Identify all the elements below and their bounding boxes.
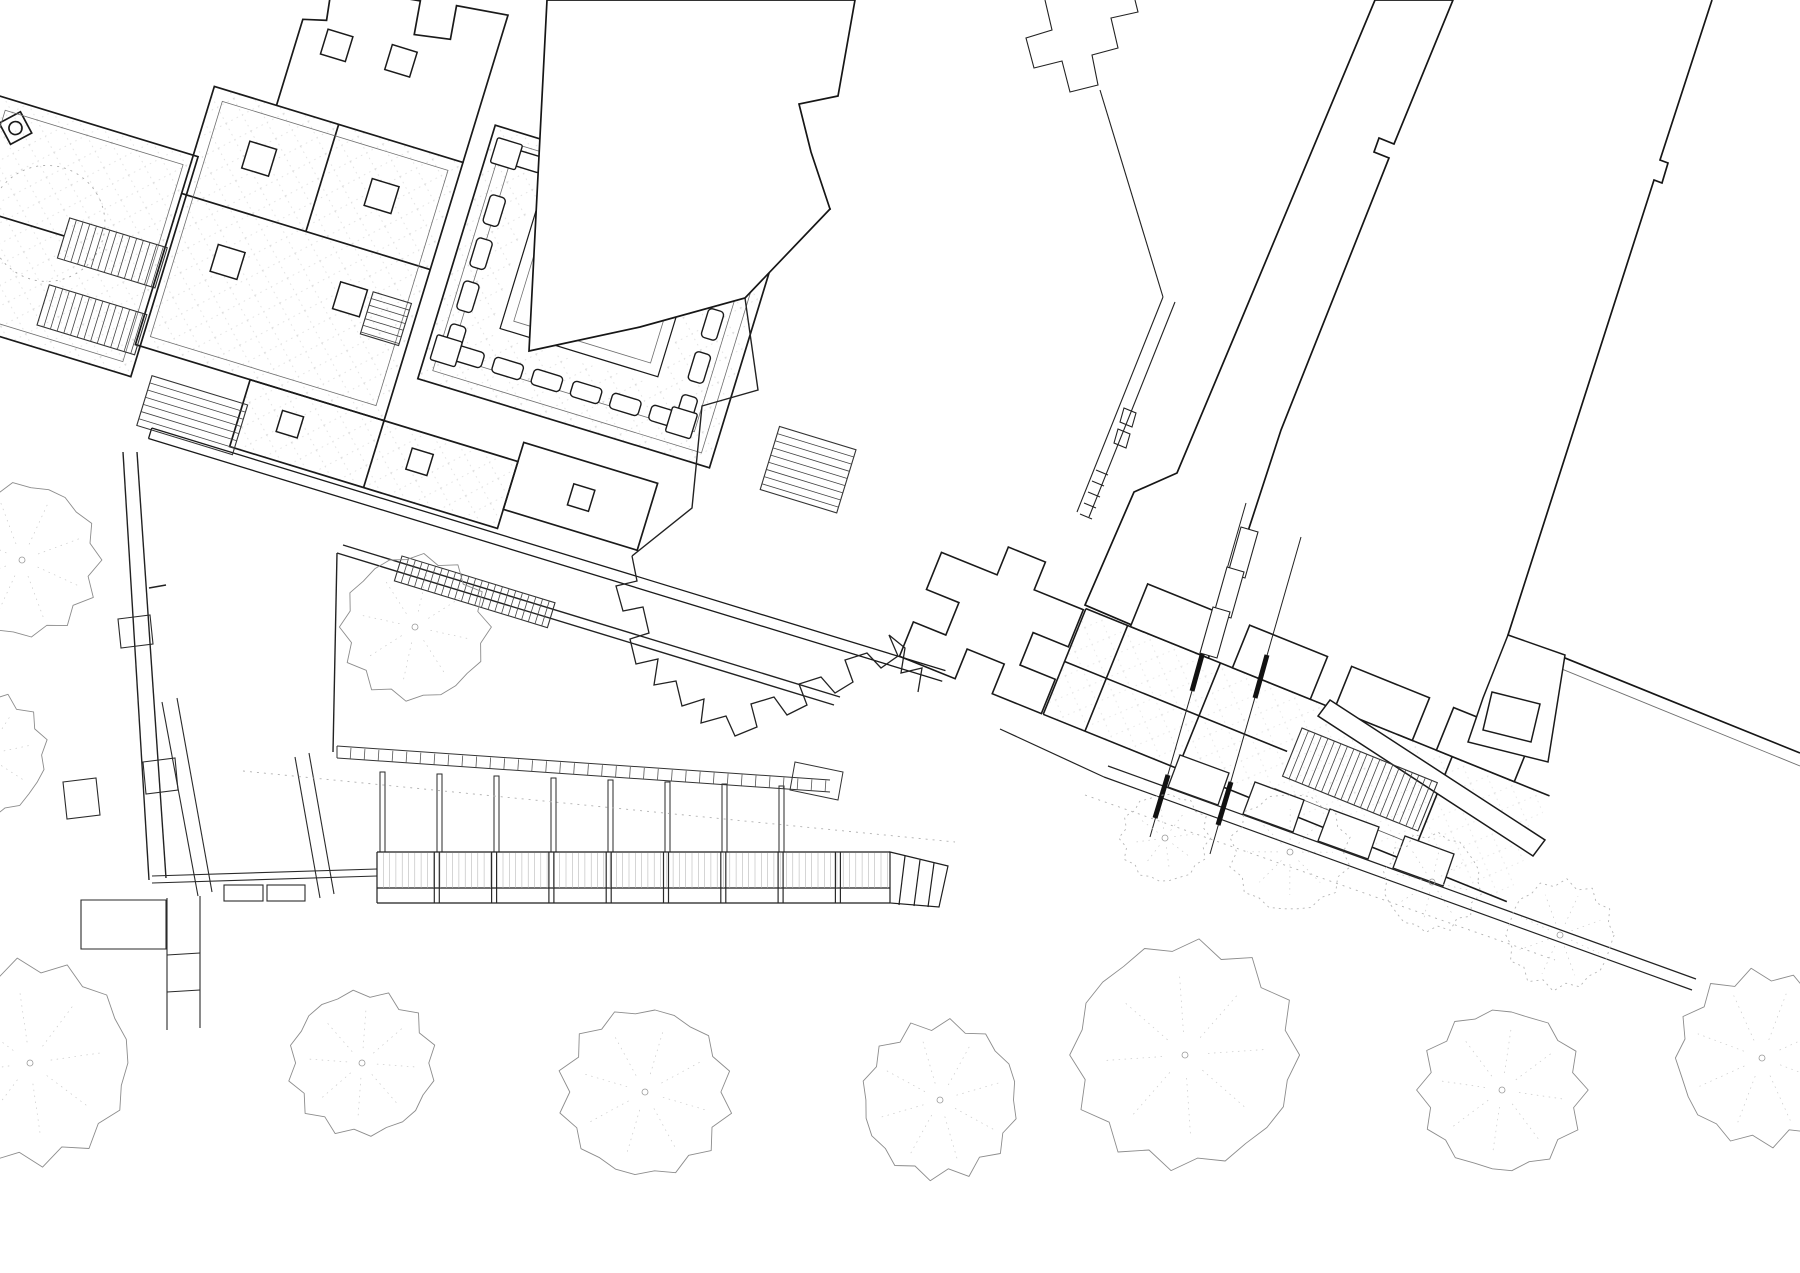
tree-canopy	[289, 990, 435, 1136]
tree-canopy	[863, 1019, 1016, 1181]
tree-canopy	[559, 1010, 732, 1175]
escalator-strip	[1026, 0, 1175, 519]
boardwalk-dividers-a	[434, 852, 835, 903]
boardwalk-deck-hatch	[383, 853, 887, 888]
building-far-east	[1508, 0, 1800, 753]
tree-canopy	[1417, 1010, 1589, 1171]
pergola-posts	[380, 772, 784, 852]
terrace-retaining-wall	[149, 428, 946, 681]
tree-canopy	[1070, 939, 1300, 1171]
tree-canopy-dotted	[1119, 794, 1211, 881]
garden-wall-stair	[394, 556, 555, 628]
site-plan-page	[0, 0, 1800, 1273]
tree-canopy	[339, 554, 491, 702]
site-plan-svg	[0, 0, 1800, 1273]
tree-canopy	[0, 692, 47, 818]
trellis-band	[337, 746, 843, 800]
terrain-jagged-edge	[616, 556, 922, 736]
garden-walkways	[63, 615, 377, 1030]
tree-canopy	[0, 958, 128, 1167]
tree-canopy	[1675, 968, 1800, 1148]
trellis-ticks	[350, 748, 826, 791]
terrace-stair-east	[760, 426, 856, 513]
tree-canopy	[0, 483, 102, 637]
tree-canopy-dotted	[1506, 879, 1614, 991]
